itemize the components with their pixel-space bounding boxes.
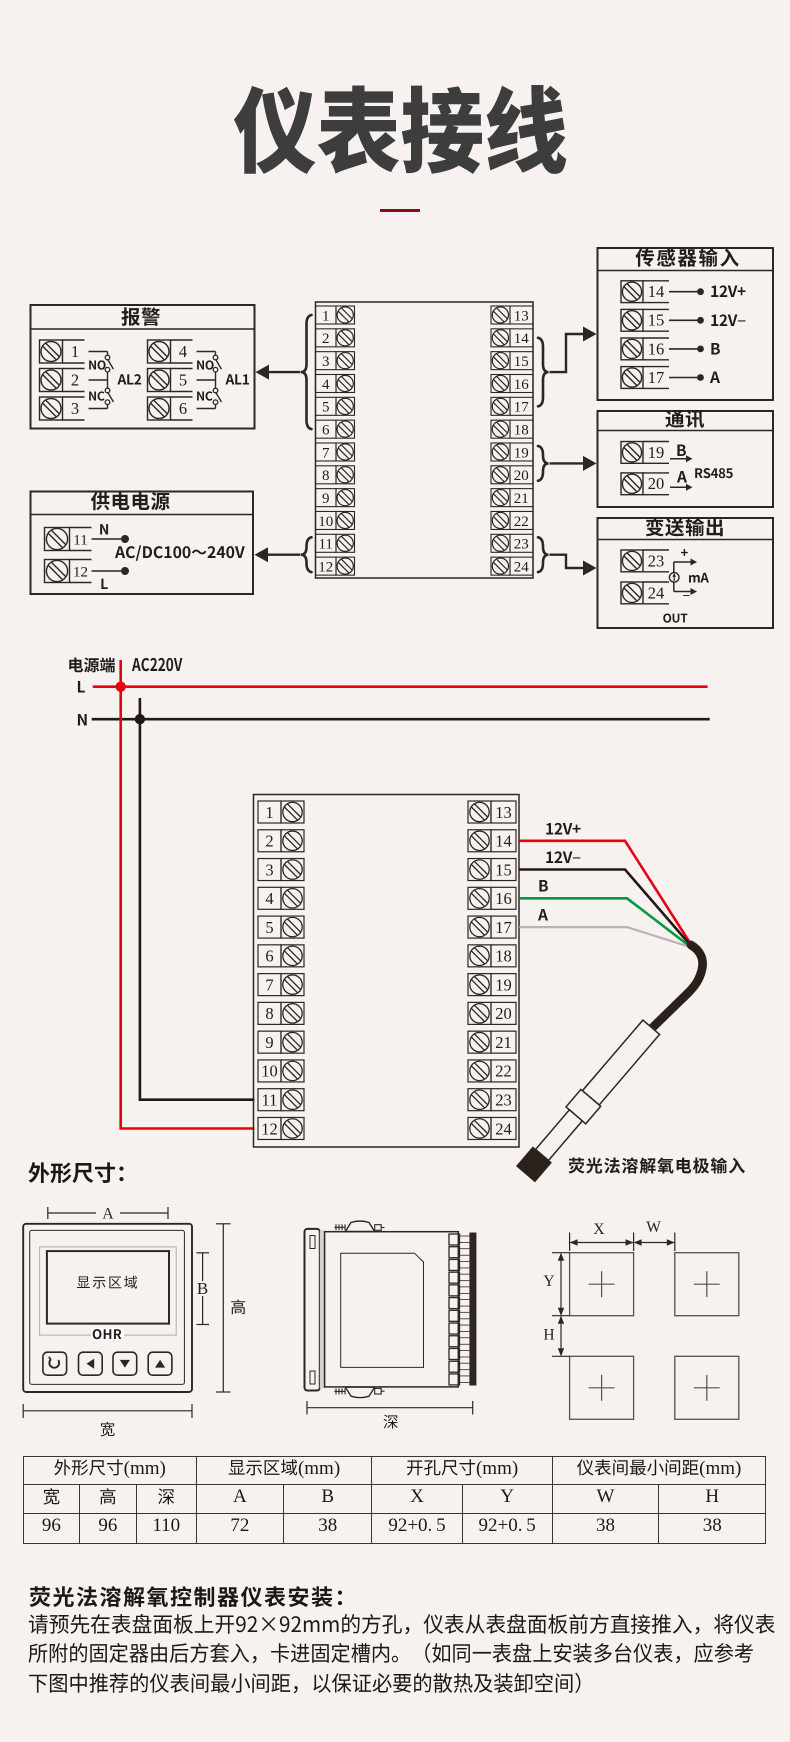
svg-text:荧光法溶解氧电极输入: 荧光法溶解氧电极输入 [568,1152,746,1177]
svg-text:AC220V: AC220V [131,651,182,677]
svg-text:RS485: RS485 [694,463,734,482]
svg-text:报警: 报警 [121,301,161,330]
svg-text:20: 20 [514,468,529,484]
svg-text:11: 11 [262,1091,278,1110]
svg-text:14: 14 [495,832,512,851]
svg-text:15: 15 [495,860,512,879]
svg-text:高: 高 [230,1294,246,1318]
svg-text:L: L [77,676,86,698]
svg-text:变送输出: 变送输出 [645,512,725,541]
svg-text:A: A [102,1206,114,1223]
svg-text:A: A [537,904,548,926]
svg-text:19: 19 [514,445,529,461]
svg-text:24: 24 [648,583,665,602]
svg-text:通讯: 通讯 [665,403,705,432]
svg-text:B: B [710,337,720,359]
svg-text:NO: NO [88,356,106,374]
svg-text:14: 14 [648,282,665,301]
svg-text:供电电源: 供电电源 [90,486,170,515]
svg-text:12V−: 12V− [710,309,746,331]
svg-text:23: 23 [648,551,665,570]
svg-text:5: 5 [265,918,273,937]
svg-text:电源端: 电源端 [68,652,116,676]
svg-text:Y: Y [543,1273,554,1290]
svg-text:6: 6 [179,399,187,418]
svg-text:15: 15 [514,354,529,370]
svg-text:W: W [646,1219,661,1236]
svg-text:11: 11 [318,537,332,553]
svg-text:N: N [77,709,88,731]
svg-text:12: 12 [73,565,88,581]
svg-text:6: 6 [265,947,273,966]
svg-text:宽: 宽 [100,1418,116,1440]
svg-text:19: 19 [648,443,665,462]
svg-text:6: 6 [322,423,330,439]
svg-text:+: + [681,543,689,562]
svg-text:B: B [538,875,548,897]
svg-text:13: 13 [514,308,529,324]
svg-text:AC/DC100～240V: AC/DC100～240V [114,540,245,563]
svg-text:L: L [100,574,108,594]
svg-text:H: H [543,1327,554,1344]
svg-text:17: 17 [514,400,530,416]
svg-text:15: 15 [648,311,665,330]
svg-text:18: 18 [495,947,512,966]
svg-text:12: 12 [318,560,333,576]
svg-text:AL1: AL1 [225,368,250,388]
svg-text:9: 9 [322,491,330,507]
svg-text:A: A [676,466,687,488]
svg-text:4: 4 [322,377,330,393]
svg-text:14: 14 [514,331,530,347]
svg-text:NO: NO [196,356,214,374]
svg-text:NC: NC [196,387,213,405]
svg-text:12V+: 12V+ [545,818,581,840]
svg-text:7: 7 [322,445,330,461]
svg-text:23: 23 [495,1091,512,1110]
svg-text:A: A [709,366,720,388]
svg-text:19: 19 [495,975,512,994]
svg-text:3: 3 [71,399,79,418]
svg-text:5: 5 [322,400,330,416]
svg-text:17: 17 [495,918,512,937]
svg-text:23: 23 [514,537,529,553]
svg-text:16: 16 [648,339,665,358]
svg-text:20: 20 [648,474,665,493]
svg-text:2: 2 [265,832,273,851]
svg-text:2: 2 [322,331,330,347]
svg-text:OUT: OUT [663,610,689,627]
svg-text:24: 24 [495,1119,512,1138]
svg-text:21: 21 [495,1033,512,1052]
svg-text:20: 20 [495,1004,512,1023]
svg-text:24: 24 [514,560,530,576]
svg-text:1: 1 [322,308,330,324]
svg-text:OHR: OHR [92,1324,122,1343]
svg-text:1: 1 [71,342,79,361]
svg-text:−: − [683,585,691,604]
svg-text:1: 1 [265,803,273,822]
svg-text:8: 8 [265,1004,273,1023]
svg-text:AL2: AL2 [117,368,142,388]
svg-text:NC: NC [88,387,105,405]
svg-text:13: 13 [495,803,512,822]
svg-text:16: 16 [495,889,512,908]
svg-text:4: 4 [179,342,187,361]
svg-text:显示区域: 显示区域 [76,1273,139,1293]
svg-text:11: 11 [73,533,87,549]
svg-text:21: 21 [514,491,529,507]
svg-text:12V−: 12V− [545,846,581,868]
svg-text:9: 9 [265,1033,273,1052]
svg-text:B: B [197,1279,208,1298]
svg-text:3: 3 [265,860,273,879]
svg-text:N: N [99,520,109,540]
svg-text:深: 深 [383,1411,399,1433]
svg-text:4: 4 [265,889,273,908]
svg-text:X: X [593,1221,604,1238]
svg-text:12: 12 [261,1119,278,1138]
svg-text:22: 22 [514,514,529,530]
svg-text:5: 5 [179,371,187,390]
svg-text:2: 2 [71,371,79,390]
svg-text:18: 18 [514,423,529,439]
svg-text:7: 7 [265,975,273,994]
svg-text:3: 3 [322,354,330,370]
svg-text:17: 17 [648,368,665,387]
svg-text:16: 16 [514,377,530,393]
svg-text:10: 10 [261,1062,278,1081]
svg-text:10: 10 [318,514,333,530]
svg-text:22: 22 [495,1062,512,1081]
svg-text:mA: mA [688,568,709,587]
svg-text:8: 8 [322,468,330,484]
svg-text:B: B [676,439,686,461]
svg-text:传感器输入: 传感器输入 [635,242,741,271]
svg-text:12V+: 12V+ [710,280,746,302]
